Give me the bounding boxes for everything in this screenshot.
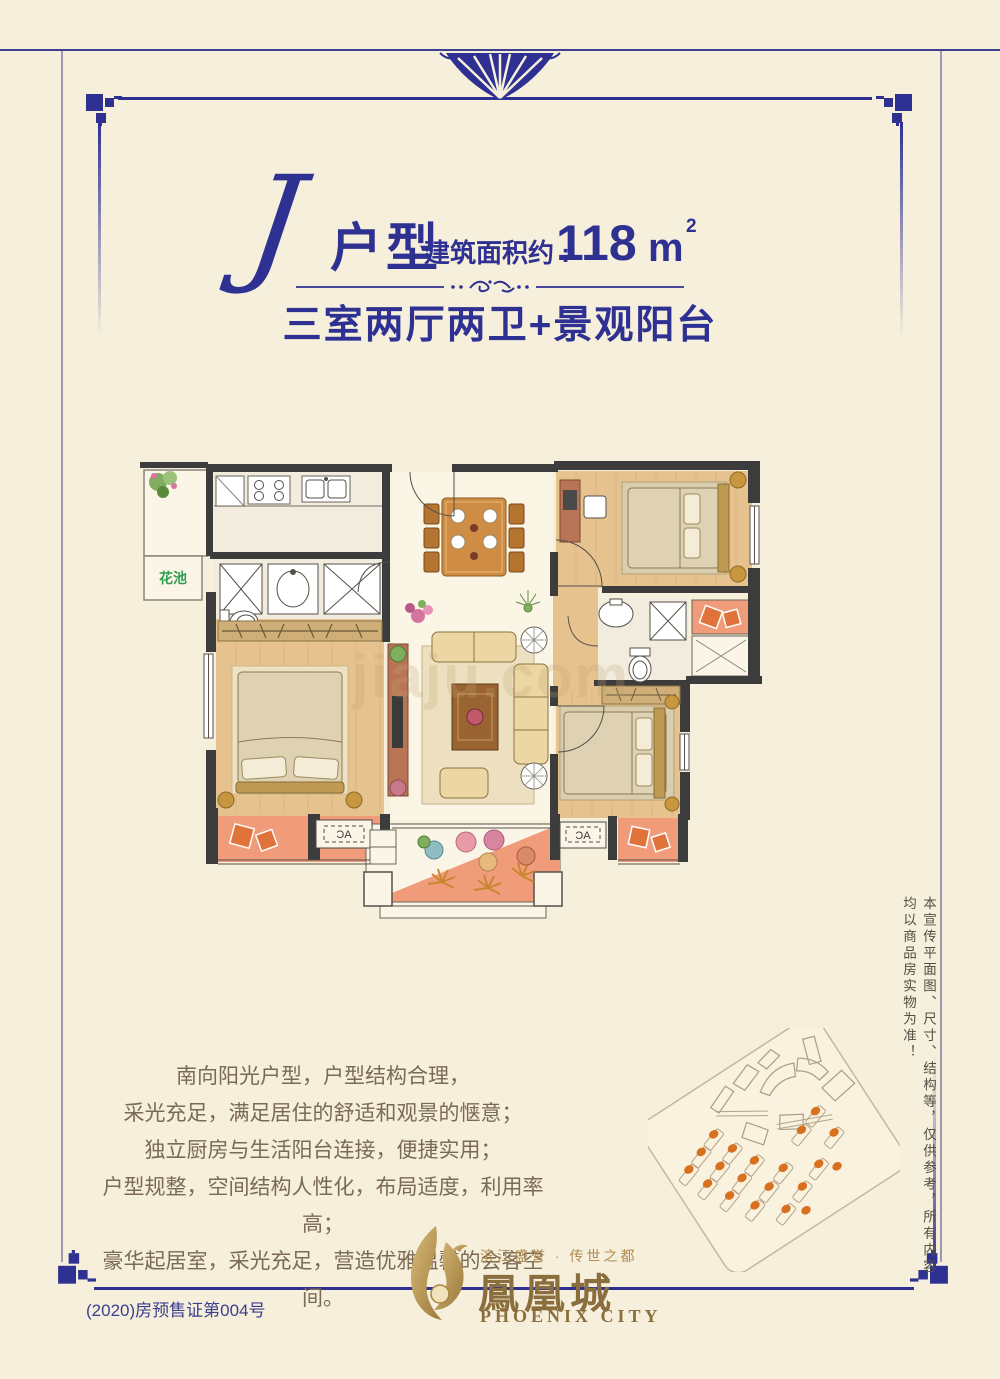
right-border-line — [940, 50, 942, 1262]
site-plan — [648, 1028, 900, 1272]
area-value: 118 — [556, 214, 637, 272]
area-unit-sup: 2 — [686, 216, 697, 238]
presale-permit-number: (2020)房预售证第004号 — [86, 1296, 266, 1321]
ac-label: AC — [575, 830, 590, 842]
flower-bed-label: 花池 — [159, 570, 187, 586]
selling-point-line: 户型规整，空间结构人性化，布局适度，利用率高； — [88, 1169, 558, 1243]
left-border-line — [61, 50, 63, 1262]
poster-page: J 户型 建筑面积约 : 118 m 2 三室两厅两卫+景观阳台 — [0, 0, 1000, 1379]
area-label: 建筑面积约 : — [424, 233, 570, 270]
layout-subtitle: 三室两厅两卫+景观阳台 — [0, 294, 1000, 350]
corner-seal-topright-icon — [876, 88, 914, 126]
fan-ornament-icon — [438, 50, 562, 102]
watermark: jiaju.com — [352, 642, 692, 711]
area-unit: m — [648, 226, 684, 271]
selling-point-line: 南向阳光户型，户型结构合理， — [88, 1058, 558, 1095]
logo-name-en: PHOENIX CITY — [480, 1306, 662, 1327]
selling-point-line: 采光充足，满足居住的舒适和观景的惬意； — [88, 1095, 558, 1132]
title-divider-flourish-icon — [296, 276, 684, 296]
ac-box-right: AC — [560, 822, 606, 848]
disclaimer-vertical-text: 本宣传平面图、尺寸、结构等，仅供参考，所有内容均以商品房实物为准！ — [898, 896, 938, 1276]
selling-point-line: 独立厨房与生活阳台连接，便捷实用； — [88, 1132, 558, 1169]
phoenix-logo-icon — [402, 1222, 476, 1324]
floor-plan: AC AC 花池 — [136, 458, 878, 970]
ac-box-left: AC — [316, 820, 372, 848]
ac-label: AC — [336, 829, 351, 841]
unit-letter: J — [241, 160, 310, 288]
corner-seal-topleft-icon — [84, 88, 122, 126]
